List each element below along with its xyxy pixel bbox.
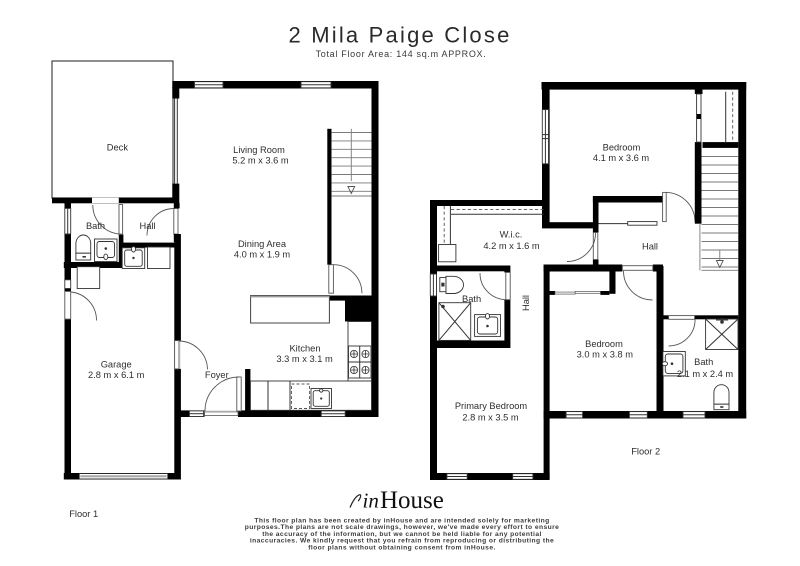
svg-text:Total Floor Area: 144 sq.m APP: Total Floor Area: 144 sq.m APPROX.	[316, 49, 487, 59]
svg-text:Bath: Bath	[694, 357, 713, 367]
svg-text:5.2 m x 3.6 m: 5.2 m x 3.6 m	[232, 156, 289, 166]
svg-text:Dining Area: Dining Area	[238, 239, 287, 249]
svg-text:Kitchen: Kitchen	[289, 344, 320, 354]
svg-text:Foyer: Foyer	[205, 370, 229, 380]
svg-text:3.0 m x 3.8 m: 3.0 m x 3.8 m	[577, 350, 634, 360]
svg-text:in: in	[363, 489, 379, 513]
svg-text:Deck: Deck	[107, 143, 129, 153]
svg-text:House: House	[380, 487, 444, 514]
svg-text:Floor 1: Floor 1	[69, 509, 98, 519]
svg-text:Hall: Hall	[139, 221, 155, 231]
svg-text:4.2 m x 1.6 m: 4.2 m x 1.6 m	[483, 241, 540, 251]
svg-text:Floor 2: Floor 2	[631, 447, 660, 457]
svg-text:Bath: Bath	[462, 294, 481, 304]
svg-text:Hall: Hall	[642, 242, 658, 252]
svg-text:Living Room: Living Room	[233, 145, 285, 155]
svg-text:Primary Bedroom: Primary Bedroom	[455, 401, 528, 411]
svg-text:floor plans without obtaining: floor plans without obtaining consent fr…	[308, 544, 496, 551]
svg-text:2 Mila Paige Close: 2 Mila Paige Close	[288, 22, 511, 47]
svg-text:Bedroom: Bedroom	[585, 339, 623, 349]
svg-text:2.1 m x 2.4 m: 2.1 m x 2.4 m	[677, 369, 734, 379]
svg-text:Hall: Hall	[521, 295, 531, 311]
svg-text:2.8 m x 6.1 m: 2.8 m x 6.1 m	[88, 370, 145, 380]
svg-text:4.0 m x 1.9 m: 4.0 m x 1.9 m	[234, 250, 291, 260]
svg-text:4.1 m x 3.6 m: 4.1 m x 3.6 m	[593, 153, 650, 163]
svg-text:2.8 m x 3.5 m: 2.8 m x 3.5 m	[462, 413, 519, 423]
svg-text:Bedroom: Bedroom	[603, 143, 641, 153]
svg-text:W.i.c.: W.i.c.	[500, 230, 523, 240]
svg-text:Garage: Garage	[101, 360, 132, 370]
svg-text:Bath: Bath	[86, 221, 105, 231]
svg-text:3.3 m x 3.1 m: 3.3 m x 3.1 m	[276, 354, 333, 364]
